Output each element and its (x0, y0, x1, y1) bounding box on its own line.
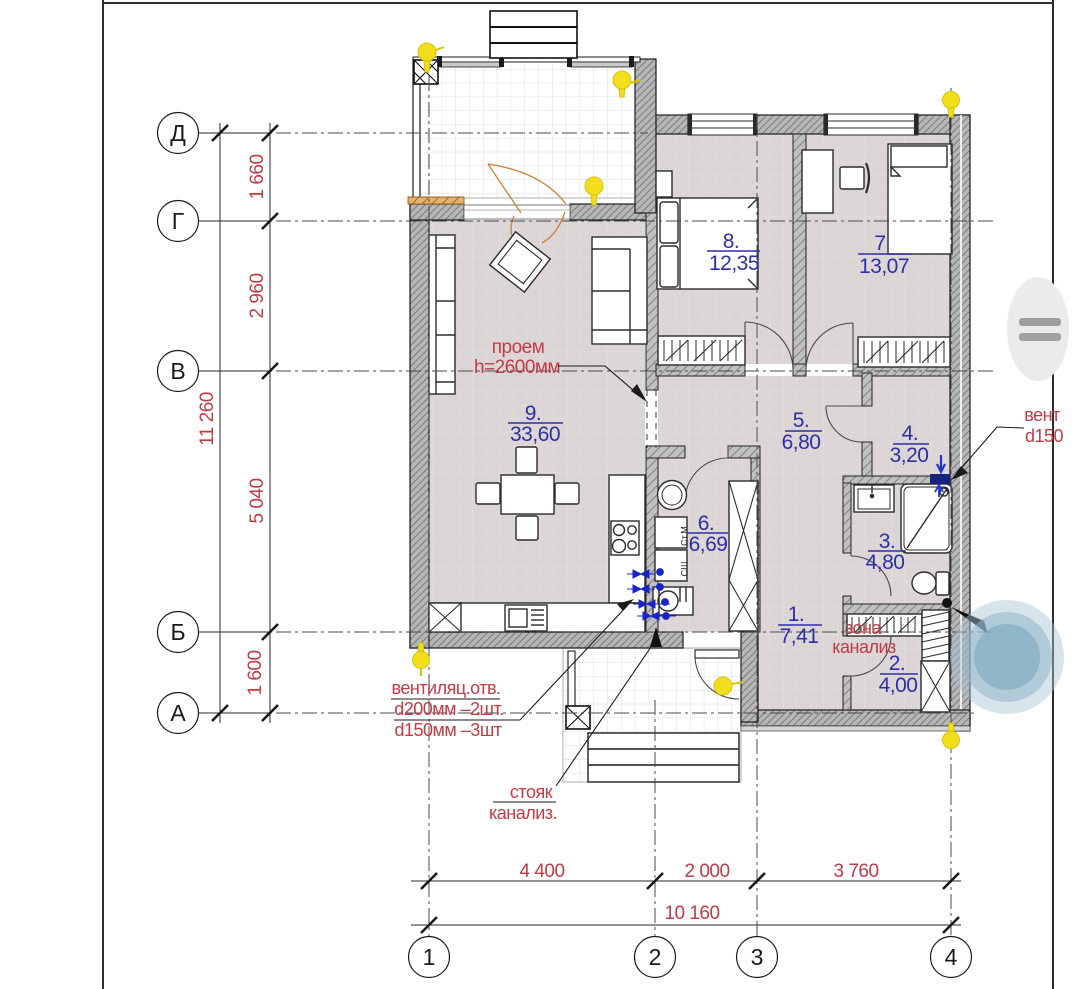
svg-text:11 260: 11 260 (197, 392, 218, 446)
svg-text:3.: 3. (879, 530, 896, 553)
svg-text:6,69: 6,69 (689, 533, 728, 556)
svg-text:d200мм –2шт.: d200мм –2шт. (394, 699, 504, 719)
svg-text:5.: 5. (793, 409, 810, 432)
svg-text:1.: 1. (788, 603, 805, 626)
svg-text:1 660: 1 660 (247, 154, 268, 199)
svg-text:А: А (170, 700, 186, 726)
svg-text:4: 4 (945, 944, 958, 970)
svg-text:5 040: 5 040 (247, 478, 268, 523)
svg-text:3 760: 3 760 (833, 861, 878, 882)
svg-text:стояк: стояк (510, 782, 553, 802)
svg-text:d150: d150 (1025, 426, 1064, 446)
svg-text:d150мм –3шт: d150мм –3шт (395, 720, 502, 740)
svg-text:канализ: канализ (832, 637, 896, 657)
svg-text:3,20: 3,20 (890, 444, 929, 467)
svg-text:Д: Д (170, 120, 186, 146)
svg-text:9.: 9. (525, 402, 542, 425)
svg-text:вентиляц.отв.: вентиляц.отв. (391, 678, 500, 698)
svg-text:13,07: 13,07 (859, 255, 909, 278)
svg-text:h=2600мм: h=2600мм (474, 357, 560, 378)
svg-text:1 600: 1 600 (245, 650, 266, 695)
svg-text:7: 7 (874, 232, 885, 255)
svg-text:6.: 6. (698, 512, 715, 535)
svg-text:канализ.: канализ. (489, 803, 557, 823)
svg-text:6,80: 6,80 (782, 431, 821, 454)
svg-text:8.: 8. (723, 230, 740, 253)
svg-text:Г: Г (172, 208, 185, 234)
svg-text:4.: 4. (902, 422, 919, 445)
svg-text:33,60: 33,60 (510, 423, 560, 446)
svg-text:4,00: 4,00 (879, 674, 918, 697)
svg-text:2 000: 2 000 (684, 861, 729, 882)
svg-text:7,41: 7,41 (780, 625, 819, 648)
svg-text:3: 3 (751, 944, 764, 970)
svg-text:10 160: 10 160 (664, 903, 719, 924)
svg-text:СШ: СШ (679, 562, 689, 577)
svg-text:12,35: 12,35 (709, 252, 759, 275)
svg-text:вент: вент (1024, 405, 1060, 425)
svg-text:2 960: 2 960 (247, 273, 268, 318)
svg-text:4 400: 4 400 (519, 861, 564, 882)
svg-text:В: В (170, 358, 185, 384)
svg-text:1: 1 (423, 944, 436, 970)
svg-text:зона: зона (845, 618, 883, 638)
svg-text:Б: Б (170, 619, 185, 645)
svg-text:4,80: 4,80 (866, 551, 905, 574)
svg-text:2: 2 (649, 944, 662, 970)
svg-text:проем: проем (492, 337, 545, 358)
